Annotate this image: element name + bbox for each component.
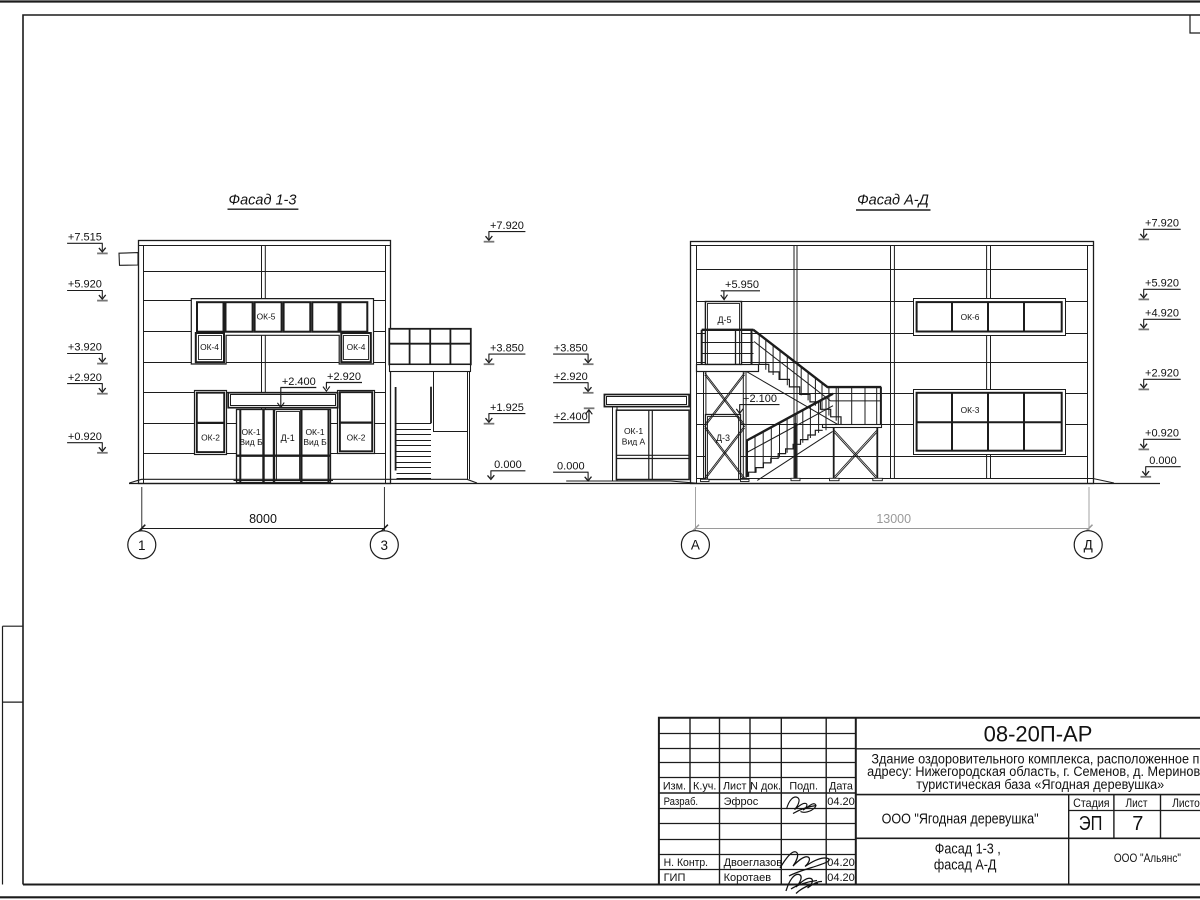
svg-text:фасад А-Д: фасад А-Д (934, 857, 997, 874)
svg-text:Изм.: Изм. (663, 780, 686, 792)
svg-text:туристическая база «Ягодная де: туристическая база «Ягодная деревушка» (916, 777, 1164, 792)
svg-text:+7.515: +7.515 (68, 232, 102, 244)
svg-text:04.20: 04.20 (827, 872, 855, 884)
svg-text:+5.920: +5.920 (1145, 278, 1179, 290)
svg-text:ООО "Альянс": ООО "Альянс" (1114, 851, 1181, 865)
svg-text:К.уч.: К.уч. (693, 780, 716, 792)
svg-text:+7.920: +7.920 (490, 220, 524, 232)
svg-text:ОК-5: ОК-5 (257, 312, 276, 322)
svg-text:Листов: Листов (1172, 796, 1200, 810)
svg-text:N док.: N док. (750, 780, 781, 792)
svg-text:ЭП: ЭП (1079, 813, 1103, 835)
svg-text:Коротаев: Коротаев (724, 872, 772, 884)
svg-text:ОК-4: ОК-4 (200, 342, 219, 352)
svg-text:Вид Б: Вид Б (303, 437, 327, 447)
svg-text:Фасад 1-3 ,: Фасад 1-3 , (935, 841, 1001, 858)
svg-text:Вид Б: Вид Б (239, 437, 263, 447)
svg-text:+1.925: +1.925 (490, 402, 524, 414)
svg-text:ОК-3: ОК-3 (961, 405, 980, 415)
svg-text:Лист: Лист (1126, 796, 1148, 810)
svg-text:+5.950: +5.950 (725, 279, 759, 291)
svg-text:+7.920: +7.920 (1145, 218, 1179, 230)
svg-text:+2.920: +2.920 (68, 372, 102, 384)
svg-text:+2.100: +2.100 (743, 393, 777, 405)
svg-text:+0.920: +0.920 (68, 431, 102, 443)
svg-text:ОК-1: ОК-1 (241, 427, 260, 437)
svg-text:+2.400: +2.400 (554, 411, 588, 423)
svg-text:Фасад А-Д: Фасад А-Д (857, 193, 929, 209)
svg-text:ОК-1: ОК-1 (624, 426, 643, 436)
svg-text:+2.920: +2.920 (554, 371, 588, 383)
svg-text:04.20: 04.20 (827, 796, 855, 808)
svg-text:7: 7 (1132, 813, 1143, 835)
svg-text:8000: 8000 (249, 512, 277, 526)
svg-text:13000: 13000 (876, 512, 911, 526)
svg-text:0.000: 0.000 (1149, 455, 1177, 467)
svg-text:04.20: 04.20 (827, 857, 855, 869)
svg-text:Д-1: Д-1 (281, 433, 295, 443)
svg-text:ОК-1: ОК-1 (305, 427, 324, 437)
svg-text:+3.920: +3.920 (68, 342, 102, 354)
svg-text:Эфрос: Эфрос (724, 796, 759, 808)
svg-text:ОК-2: ОК-2 (347, 433, 366, 443)
svg-text:Дата: Дата (829, 780, 853, 792)
svg-text:Двоеглазов: Двоеглазов (724, 857, 783, 869)
svg-text:+2.920: +2.920 (327, 371, 361, 383)
svg-text:+2.920: +2.920 (1145, 368, 1179, 380)
svg-text:+0.920: +0.920 (1145, 428, 1179, 440)
svg-text:А: А (691, 538, 700, 553)
svg-text:Стадия: Стадия (1073, 796, 1110, 810)
svg-text:0.000: 0.000 (557, 460, 585, 472)
svg-text:08-20П-АР: 08-20П-АР (984, 721, 1093, 746)
svg-text:0.000: 0.000 (494, 459, 522, 471)
svg-text:Фасад 1-3: Фасад 1-3 (229, 193, 297, 209)
svg-text:+3.850: +3.850 (490, 342, 524, 354)
svg-text:ОК-2: ОК-2 (201, 433, 220, 443)
svg-text:Лист: Лист (723, 780, 747, 792)
svg-text:Подп.: Подп. (789, 780, 818, 792)
svg-text:+3.850: +3.850 (554, 342, 588, 354)
svg-text:+5.920: +5.920 (68, 279, 102, 291)
svg-text:Н. Контр.: Н. Контр. (664, 857, 709, 869)
svg-text:3: 3 (381, 538, 389, 553)
svg-text:Д-3: Д-3 (716, 433, 730, 443)
svg-text:+2.400: +2.400 (282, 376, 316, 388)
svg-text:Разраб.: Разраб. (664, 796, 699, 808)
svg-text:Д: Д (1084, 538, 1093, 553)
svg-text:1: 1 (138, 538, 146, 553)
svg-text:+4.920: +4.920 (1145, 308, 1179, 320)
svg-text:Д-5: Д-5 (717, 315, 731, 325)
svg-text:ГИП: ГИП (664, 872, 686, 884)
svg-text:ОК-4: ОК-4 (347, 342, 366, 352)
svg-text:Вид А: Вид А (622, 437, 646, 447)
svg-text:ООО "Ягодная деревушка": ООО "Ягодная деревушка" (882, 810, 1039, 827)
svg-text:ОК-6: ОК-6 (961, 312, 980, 322)
